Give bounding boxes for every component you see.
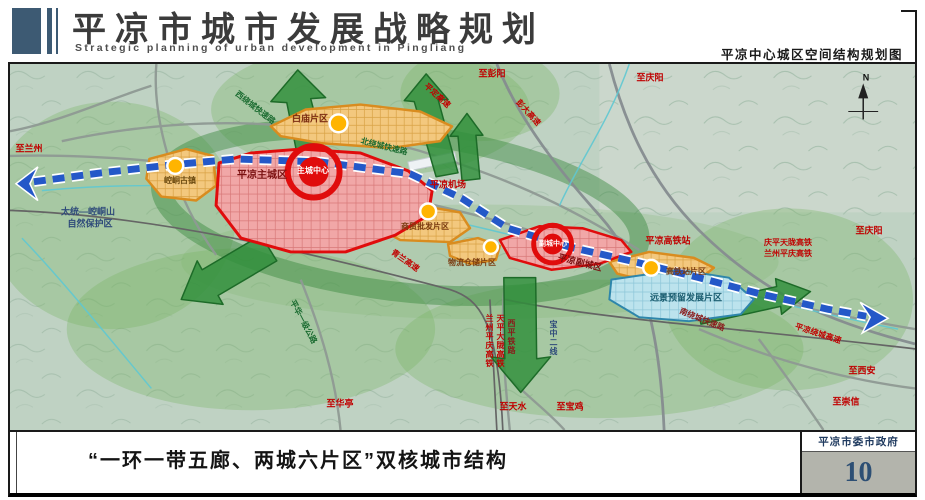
structure-caption: “一环一带五廊、两城六片区”双核城市结构 [88,444,508,473]
header-logo-bar-icon [47,8,52,54]
header-right-tick [901,10,917,12]
header-logo-icon [12,8,41,54]
page-number: 10 [802,452,915,493]
page-title-english: Strategic planning of urban development … [75,42,466,54]
header-logo-bar2-icon [56,8,58,54]
footer-right-box: 平凉市委市政府 10 [800,432,915,493]
page: 平凉市城市发展战略规划 Strategic planning of urban … [0,0,925,500]
agency-label: 平凉市委市政府 [802,432,915,452]
planning-map-svg [10,64,915,430]
map-subtitle: 平凉中心城区空间结构规划图 [721,44,903,63]
planning-map [8,62,917,432]
footer-bar: “一环一带五廊、两城六片区”双核城市结构 平凉市委市政府 10 [8,432,917,497]
header-right-border [915,10,917,62]
frame-inner-line [16,432,17,493]
